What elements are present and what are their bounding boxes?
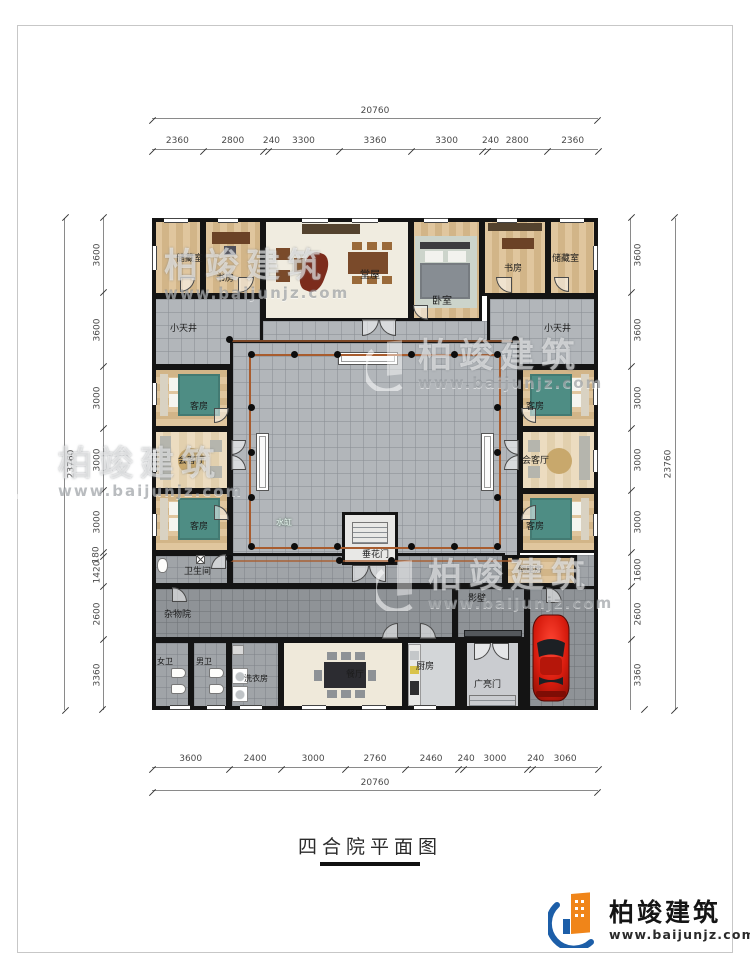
label-festoon-gate: 垂花门 xyxy=(362,550,389,561)
column-dot xyxy=(248,449,255,456)
column-dot xyxy=(226,336,233,343)
sundry-yard xyxy=(152,586,455,640)
dimension-segment: 3360 xyxy=(339,135,411,149)
room-label-dining: 餐厅 xyxy=(346,670,364,681)
room-label-guest-left-top: 客房 xyxy=(190,402,208,413)
dimension-value: 20760 xyxy=(361,106,390,116)
window xyxy=(152,383,157,405)
chair xyxy=(382,242,392,250)
desk xyxy=(502,238,534,249)
room-label-guest-left-bottom: 客房 xyxy=(190,522,208,533)
column-dot xyxy=(494,543,501,550)
pillow xyxy=(572,518,581,531)
dimension-segment: 3600 xyxy=(90,218,104,293)
dimension-segment: 3360 xyxy=(631,640,645,710)
car xyxy=(531,613,571,703)
headboard xyxy=(420,242,470,249)
pillow xyxy=(572,394,581,407)
dimension-segment: 2460 xyxy=(405,753,458,767)
window xyxy=(218,218,238,223)
dimension-segment: 3300 xyxy=(411,135,482,149)
dimension-top-total: 20760 xyxy=(152,106,598,119)
chair xyxy=(352,242,362,250)
dimension-segment: 3600 xyxy=(90,293,104,368)
room-label-storage-right: 储藏室 xyxy=(552,254,579,265)
column-dot xyxy=(494,351,501,358)
dimension-top-segments: 2360280024033003360330024028002360 xyxy=(152,134,598,150)
room-label-lightwell-left: 小天井 xyxy=(170,324,197,335)
dimension-segment: 1420 xyxy=(90,557,104,586)
room-label-reception-left: 会客厅 xyxy=(178,456,205,467)
dimension-left-total: 23760 xyxy=(64,218,78,710)
label-entry-gate: 广亮门 xyxy=(474,680,501,691)
dimension-segment: 3000 xyxy=(281,753,345,767)
window xyxy=(424,218,448,223)
window xyxy=(560,218,584,223)
dimension-segment: 3600 xyxy=(152,753,229,767)
column-dot xyxy=(248,543,255,550)
brand-logo: 柏竣建筑 www.baijunjz.com xyxy=(548,892,750,948)
dimension-segment: 3300 xyxy=(268,135,339,149)
bench xyxy=(481,433,494,491)
window xyxy=(593,246,598,270)
column-dot xyxy=(248,404,255,411)
dimension-segment: 2800 xyxy=(203,135,263,149)
window xyxy=(207,705,225,710)
column-dot xyxy=(291,543,298,550)
dimension-segment: 3360 xyxy=(90,640,104,710)
chair xyxy=(327,690,337,698)
column-dot xyxy=(334,351,341,358)
tv-cabinet xyxy=(302,224,360,234)
window xyxy=(593,514,598,536)
room-label-guest-right-bottom: 客房 xyxy=(526,522,544,533)
armchair xyxy=(210,466,222,478)
chair xyxy=(382,276,392,284)
room-label-laundry: 洗衣房 xyxy=(244,673,268,684)
column-dot xyxy=(494,449,501,456)
column-dot xyxy=(494,404,501,411)
sink xyxy=(232,645,244,655)
toilet xyxy=(157,558,168,573)
round-rug xyxy=(546,448,572,474)
bench xyxy=(256,433,269,491)
column-dot xyxy=(226,555,233,562)
room-label-bathroom: 卫生间 xyxy=(184,567,211,578)
toilet xyxy=(171,684,186,694)
dimension-segment: 3000 xyxy=(463,753,527,767)
title-underline xyxy=(320,862,420,866)
column-dot xyxy=(291,351,298,358)
dimension-segment: 2600 xyxy=(631,587,645,641)
headboard xyxy=(581,498,589,540)
window xyxy=(362,705,386,710)
dimension-value: 23760 xyxy=(664,450,674,479)
dimension-segment: 2360 xyxy=(152,135,203,149)
armchair xyxy=(528,440,540,452)
column-dot xyxy=(388,557,395,564)
chair xyxy=(314,670,322,681)
armchair xyxy=(276,270,290,282)
gate-steps xyxy=(352,522,388,544)
headboard xyxy=(581,374,589,416)
screen-wall xyxy=(464,630,522,637)
pillow xyxy=(448,251,466,262)
desk-chair xyxy=(224,246,236,255)
chair xyxy=(355,690,365,698)
dimension-right-total: 23760 xyxy=(662,218,676,710)
armchair xyxy=(528,466,540,478)
beam xyxy=(252,547,498,549)
column-dot xyxy=(494,494,501,501)
pillow xyxy=(169,502,178,515)
room-label-south-room: 倒座房 xyxy=(518,564,542,575)
window xyxy=(414,705,436,710)
pillow xyxy=(572,502,581,515)
room-label-kitchen: 厨房 xyxy=(416,662,434,673)
column-dot xyxy=(408,543,415,550)
chair xyxy=(341,652,351,660)
column-dot xyxy=(512,555,519,562)
window xyxy=(170,705,190,710)
dimension-bottom-total: 20760 xyxy=(152,778,598,791)
toilet xyxy=(171,668,186,678)
room-label-hall: 堂屋 xyxy=(360,270,380,281)
dimension-segment: 2760 xyxy=(345,753,404,767)
room-label-study-right: 书房 xyxy=(504,264,522,275)
pillow xyxy=(169,378,178,391)
chair xyxy=(327,652,337,660)
dimension-segment: 3000 xyxy=(631,491,645,553)
window xyxy=(497,218,517,223)
stove xyxy=(410,681,419,695)
dimension-segment: 3000 xyxy=(90,429,104,491)
page: 20760 2360280024033003360330024028002360… xyxy=(0,0,750,977)
room-label-sundry-yard: 杂物院 xyxy=(164,610,191,621)
window xyxy=(302,705,326,710)
floor-plan: 储藏室 书房 堂屋 卧室 书房 储藏室 小天井 小天井 客房 会客厅 客房 客房… xyxy=(152,218,598,710)
dimension-segment: 3000 xyxy=(631,429,645,491)
column-dot xyxy=(451,543,458,550)
dimension-segment: 3000 xyxy=(631,367,645,429)
dimension-segment: 3000 xyxy=(90,367,104,429)
desk xyxy=(212,232,250,244)
pillow xyxy=(169,518,178,531)
column-dot xyxy=(408,351,415,358)
chair xyxy=(355,652,365,660)
column-dot xyxy=(248,494,255,501)
column-dot xyxy=(512,336,519,343)
chair xyxy=(341,690,351,698)
dimension-segment: 3060 xyxy=(532,753,598,767)
dimension-right-segments: 36003600300030003000160026003360 xyxy=(630,218,644,710)
washer xyxy=(232,686,248,702)
dimension-segment: 3600 xyxy=(631,293,645,368)
sofa xyxy=(579,436,590,480)
toilet xyxy=(209,684,224,694)
chair xyxy=(368,670,376,681)
dimension-segment: 3000 xyxy=(90,491,104,553)
window xyxy=(593,450,598,472)
room-label-study-left: 书房 xyxy=(216,274,234,285)
bookshelf xyxy=(488,223,542,231)
window xyxy=(593,383,598,405)
room-label-lightwell-right: 小天井 xyxy=(544,324,571,335)
bed xyxy=(420,263,470,299)
dimension-value: 23760 xyxy=(67,450,77,479)
room-label-reception-right: 会客厅 xyxy=(522,456,549,467)
dimension-segment: 2360 xyxy=(547,135,598,149)
toilet xyxy=(209,668,224,678)
dimension-segment: 1600 xyxy=(631,553,645,586)
room-label-men-wc: 男卫 xyxy=(196,656,212,667)
beam xyxy=(230,340,520,342)
sofa xyxy=(160,436,171,480)
chair xyxy=(367,242,377,250)
south-gap xyxy=(577,555,598,586)
pillow xyxy=(425,251,443,262)
dimension-segment: 2800 xyxy=(487,135,547,149)
window xyxy=(152,246,157,270)
headboard xyxy=(160,374,168,416)
window xyxy=(302,218,328,223)
kitchen-sink xyxy=(410,651,419,660)
pillow xyxy=(169,394,178,407)
column-dot xyxy=(248,351,255,358)
column-dot xyxy=(336,557,343,564)
bed xyxy=(530,498,572,540)
brand-name: 柏竣建筑 xyxy=(609,899,750,927)
dimension-segment: 2400 xyxy=(229,753,281,767)
brand-logo-icon xyxy=(548,892,602,948)
room-label-storage-left: 储藏室 xyxy=(176,254,203,265)
column-dot xyxy=(334,543,341,550)
window xyxy=(352,218,378,223)
label-screen-wall: 影壁 xyxy=(468,594,486,605)
dimension-segment: 3600 xyxy=(631,218,645,293)
dimension-value: 20760 xyxy=(361,778,390,788)
room-label-bedroom: 卧室 xyxy=(432,296,452,307)
dimension-left-segments: 36003600300030003000180142026003360 xyxy=(90,218,104,710)
window xyxy=(152,450,157,472)
entry-steps xyxy=(469,695,516,707)
room-label-guest-right-top: 客房 xyxy=(526,402,544,413)
dimension-segment: 2600 xyxy=(90,587,104,641)
window xyxy=(240,705,262,710)
column-dot xyxy=(451,351,458,358)
armchair xyxy=(210,440,222,452)
window xyxy=(164,218,188,223)
label-water-vat: 水缸 xyxy=(276,517,292,528)
room-label-women-wc: 女卫 xyxy=(157,656,173,667)
beam xyxy=(252,354,498,356)
dimension-bottom-segments: 3600240030002760246024030002403060 xyxy=(152,752,598,768)
window xyxy=(152,514,157,536)
floor-drain xyxy=(196,555,205,564)
drawing-title: 四合院平面图 xyxy=(270,832,470,859)
brand-site: www.baijunjz.com xyxy=(609,927,750,942)
armchair xyxy=(276,248,290,260)
headboard xyxy=(160,498,168,540)
pillow xyxy=(572,378,581,391)
